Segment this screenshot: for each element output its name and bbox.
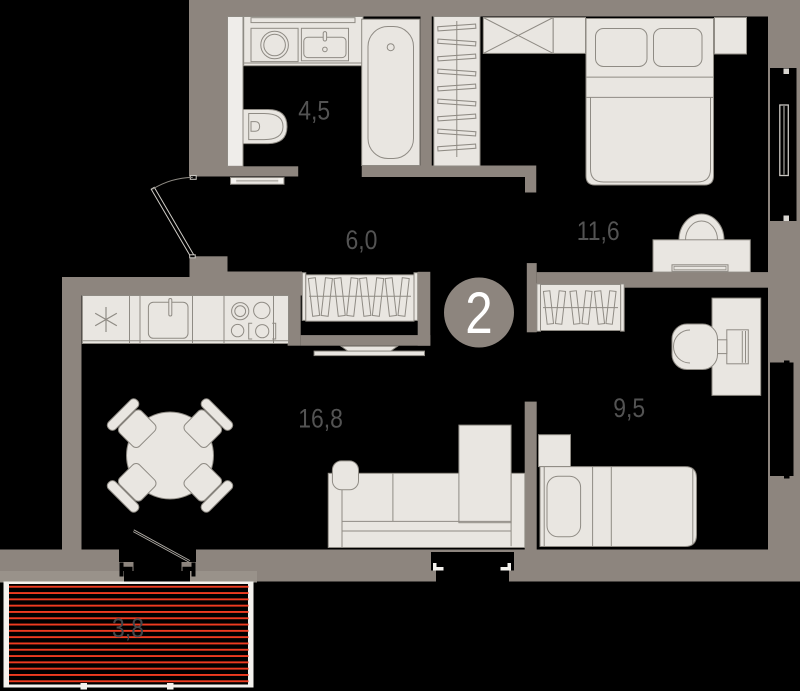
svg-text:4,5: 4,5 (298, 96, 330, 126)
svg-text:11,6: 11,6 (577, 216, 620, 246)
svg-text:6,0: 6,0 (345, 225, 377, 255)
svg-text:16,8: 16,8 (298, 404, 343, 434)
svg-text:3,8: 3,8 (112, 613, 144, 643)
svg-text:9,5: 9,5 (613, 393, 645, 423)
svg-text:2: 2 (465, 281, 492, 346)
